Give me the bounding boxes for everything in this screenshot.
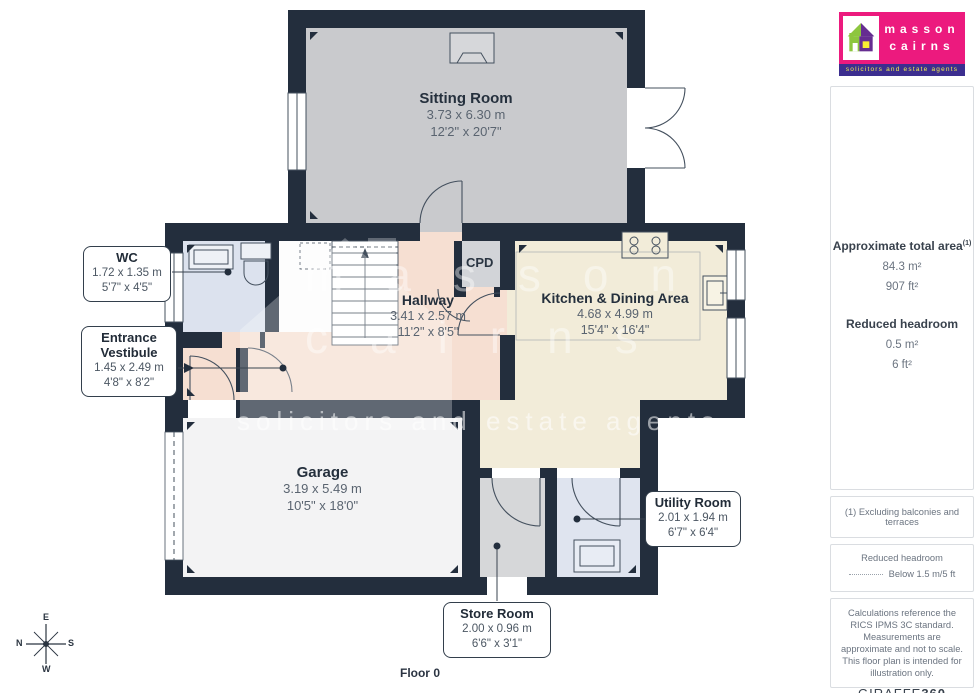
logo-line1: masson bbox=[879, 21, 965, 38]
room-name: WC bbox=[88, 251, 166, 266]
total-area-text: Approximate total area bbox=[833, 239, 963, 253]
room-metric: 1.72 x 1.35 m bbox=[88, 266, 166, 281]
room-name: Hallway bbox=[348, 292, 508, 308]
room-name: Sitting Room bbox=[346, 90, 586, 107]
store-room-floor bbox=[480, 478, 545, 577]
room-name: Kitchen & Dining Area bbox=[510, 290, 720, 306]
legend-card: Reduced headroom Below 1.5 m/5 ft bbox=[830, 544, 974, 592]
footnote-text: (1) Excluding balconies and terraces bbox=[837, 507, 967, 527]
compass-top-label: E bbox=[43, 612, 49, 622]
dotted-line-swatch bbox=[849, 574, 883, 575]
compass-rose: E S W N bbox=[14, 612, 78, 676]
room-name: Utility Room bbox=[650, 496, 736, 511]
stove bbox=[622, 232, 668, 258]
fireplace bbox=[450, 33, 494, 63]
room-imperial: 15'4" x 16'4" bbox=[510, 322, 720, 338]
room-metric: 4.68 x 4.99 m bbox=[510, 306, 720, 322]
reduced-headroom-m2: 0.5 m² bbox=[831, 339, 973, 351]
compass-right-label: S bbox=[68, 638, 74, 648]
utility-appliance bbox=[574, 540, 620, 572]
room-imperial: 4'8" x 8'2" bbox=[86, 376, 172, 391]
room-metric: 2.00 x 0.96 m bbox=[448, 622, 546, 637]
room-metric: 3.73 x 6.30 m bbox=[346, 107, 586, 124]
front-door-opening bbox=[188, 400, 236, 418]
brand-name: GIRAFFE bbox=[858, 686, 921, 693]
footnote-card: (1) Excluding balconies and terraces bbox=[830, 496, 974, 538]
room-imperial: 11'2" x 8'5" bbox=[348, 324, 508, 340]
room-imperial: 5'7" x 4'5" bbox=[88, 281, 166, 296]
room-name: Garage bbox=[230, 464, 415, 481]
brand-logo: GIRAFFE360 bbox=[838, 686, 966, 693]
compass-left-label: N bbox=[16, 638, 23, 648]
total-area-ft2: 907 ft² bbox=[831, 281, 973, 293]
room-label-sitting-room: Sitting Room 3.73 x 6.30 m 12'2" x 20'7" bbox=[346, 90, 586, 141]
room-label-hallway: Hallway 3.41 x 2.57 m 11'2" x 8'5" bbox=[348, 292, 508, 341]
compass-bottom-label: W bbox=[42, 664, 51, 674]
callout-entrance-vestibule: Entrance Vestibule 1.45 x 2.49 m 4'8" x … bbox=[81, 326, 177, 397]
room-imperial: 6'7" x 6'4" bbox=[650, 526, 736, 541]
wc-toilet bbox=[241, 243, 271, 259]
room-metric: 3.19 x 5.49 m bbox=[230, 481, 415, 498]
total-area-m2: 84.3 m² bbox=[831, 261, 973, 273]
room-label-kitchen: Kitchen & Dining Area 4.68 x 4.99 m 15'4… bbox=[510, 290, 720, 339]
french-door-opening bbox=[627, 88, 645, 168]
room-metric: 3.41 x 2.57 m bbox=[348, 308, 508, 324]
brand-name-bold: 360 bbox=[921, 686, 946, 693]
callout-wc: WC 1.72 x 1.35 m 5'7" x 4'5" bbox=[83, 246, 171, 302]
disclaimer-card: Calculations reference the RICS IPMS 3C … bbox=[830, 598, 974, 688]
logo-text: masson cairns bbox=[879, 21, 965, 56]
total-area-label: Approximate total area(1) bbox=[831, 239, 973, 253]
room-imperial: 12'2" x 20'7" bbox=[346, 124, 586, 141]
logo-tagline: solicitors and estate agents bbox=[839, 64, 965, 76]
room-label-cpd: CPD bbox=[466, 255, 493, 270]
disclaimer-text: Calculations reference the RICS IPMS 3C … bbox=[838, 607, 966, 679]
agency-logo: masson cairns solicitors and estate agen… bbox=[839, 12, 965, 76]
logo-house-icon bbox=[843, 16, 879, 60]
info-sidebar: masson cairns solicitors and estate agen… bbox=[830, 0, 974, 693]
room-name: Store Room bbox=[448, 607, 546, 622]
room-metric: 2.01 x 1.94 m bbox=[650, 511, 736, 526]
area-summary-card: Approximate total area(1) 84.3 m² 907 ft… bbox=[830, 86, 974, 490]
logo-line2: cairns bbox=[879, 38, 965, 55]
room-metric: 1.45 x 2.49 m bbox=[86, 361, 172, 376]
wc-sink bbox=[189, 245, 233, 269]
room-imperial: 10'5" x 18'0" bbox=[230, 498, 415, 515]
room-label-garage: Garage 3.19 x 5.49 m 10'5" x 18'0" bbox=[230, 464, 415, 515]
room-imperial: 6'6" x 3'1" bbox=[448, 637, 546, 652]
floor-label: Floor 0 bbox=[370, 666, 470, 680]
legend-value: Below 1.5 m/5 ft bbox=[889, 569, 956, 579]
total-area-footnote-ref: (1) bbox=[963, 240, 972, 247]
callout-utility-room: Utility Room 2.01 x 1.94 m 6'7" x 6'4" bbox=[645, 491, 741, 547]
kitchen-floor bbox=[480, 241, 727, 468]
room-name: Entrance Vestibule bbox=[86, 331, 172, 361]
reduced-headroom-label: Reduced headroom bbox=[831, 317, 973, 331]
legend-title: Reduced headroom bbox=[831, 553, 973, 563]
callout-store-room: Store Room 2.00 x 0.96 m 6'6" x 3'1" bbox=[443, 602, 551, 658]
floorplan-page: masson cairns solicitors and estate agen… bbox=[0, 0, 980, 693]
reduced-headroom-ft2: 6 ft² bbox=[831, 359, 973, 371]
